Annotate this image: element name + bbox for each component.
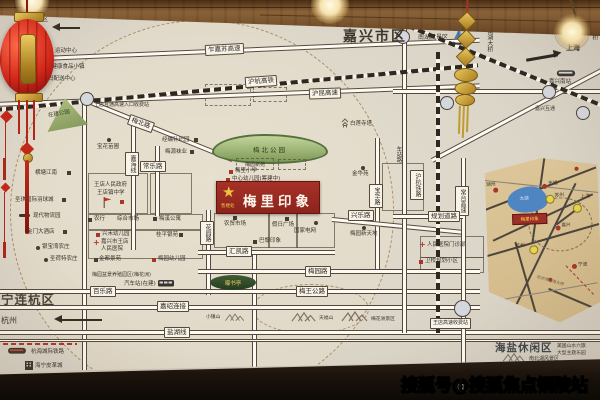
wangdian-gov-label: 王店人民政府 bbox=[94, 182, 127, 188]
side-knot bbox=[0, 110, 13, 123]
jiaxing-south-station-label: 嘉兴南站 bbox=[549, 79, 571, 85]
wangdian-school-label: 王店镇中学 bbox=[97, 190, 125, 196]
meiyuan-xinyuan-label: 梅园新苑 bbox=[245, 161, 265, 168]
xiaozhen-mountain-label: 小镇山 bbox=[206, 315, 220, 321]
bank-icon bbox=[88, 218, 92, 222]
meiwang-baile-road-line bbox=[0, 289, 480, 294]
pushuting-shape: 曝书亭 bbox=[210, 275, 256, 290]
road-label-guihua: 规划道路 bbox=[428, 211, 460, 222]
city-dot-ningbo bbox=[572, 264, 577, 269]
project-box: ★ 售楼处 梅里印象 bbox=[216, 181, 320, 214]
road-label-xingle: 兴乐路 bbox=[348, 210, 374, 221]
road-label-zhajiasu: 乍嘉苏高速 bbox=[205, 43, 244, 56]
poi-dot-icon bbox=[362, 226, 366, 230]
road-label-huikai: 汇凯路 bbox=[226, 246, 252, 257]
ninglianhang-title: 宁连杭区 bbox=[1, 293, 55, 307]
pushuting-label: 曝书亭 bbox=[225, 279, 242, 287]
jiaxing-interchange-label: 嘉兴互通 bbox=[535, 107, 555, 113]
hotel-icon bbox=[67, 171, 71, 175]
road-label-hukun: 沪昆高速 bbox=[309, 87, 341, 99]
six-flags-label-line1: 美国山水六旗 bbox=[557, 344, 586, 350]
city-label-huzhou: 湖州 bbox=[486, 181, 496, 188]
abc-bank-label: 农行 bbox=[94, 216, 105, 222]
red-cross-icon: + bbox=[93, 238, 100, 247]
star-icon: ★ bbox=[222, 183, 235, 201]
guiping-label: 桂平银苑 bbox=[156, 232, 178, 238]
lantern-body bbox=[0, 19, 54, 95]
toll-entry-label: 王店互通高速入口收费站 bbox=[94, 103, 149, 109]
poi-square-icon bbox=[253, 240, 257, 244]
xinghe-kindergarten-label: 兴禾幼儿园 bbox=[102, 231, 130, 237]
poi-square-icon bbox=[285, 217, 289, 221]
hanghai-railway-line bbox=[3, 343, 77, 345]
school-icon bbox=[120, 200, 124, 204]
knitting-park-label: 经编针织园 bbox=[162, 137, 190, 143]
state-grid-label: 国家电网 bbox=[294, 228, 316, 234]
tianfu-mountain-label: 天福山 bbox=[319, 316, 333, 322]
project-inset-box: 梅里印象 bbox=[512, 213, 547, 225]
road-label-huayuan: 花园路 bbox=[200, 221, 214, 245]
holiday-plaza-label: 假日广场 bbox=[272, 222, 294, 228]
city-block bbox=[88, 214, 203, 230]
huikai-road-line bbox=[198, 250, 335, 255]
inset-bridge-label: 杭州湾跨海大桥 bbox=[536, 274, 565, 287]
meili-primary-label: 梅里小学 bbox=[235, 168, 257, 174]
mountain-icon bbox=[290, 310, 318, 323]
city-dot-huzhou bbox=[493, 188, 498, 193]
bus-station-label: 汽车站(在建) bbox=[124, 281, 156, 287]
meiyuan-xintiandi-label: 梅园新天地 bbox=[350, 231, 378, 237]
hospital-label-line2: 人民医院 bbox=[101, 246, 123, 252]
sales-office-label: 售楼处 bbox=[221, 203, 235, 209]
hotel-icon bbox=[63, 230, 67, 234]
farmers-market-label: 农贸市场 bbox=[224, 221, 246, 227]
city-label-ningbo: 宁波 bbox=[578, 260, 588, 267]
pagoda-icon bbox=[341, 118, 349, 128]
hanghai-rail-label: 杭海城际铁路 bbox=[31, 349, 64, 355]
road-label-changle: 常乐路 bbox=[140, 161, 166, 172]
road-label-huhang-hsr: 沪杭高铁 bbox=[245, 75, 278, 88]
red-cross-icon: + bbox=[419, 240, 426, 249]
building-icon bbox=[94, 258, 98, 262]
bailian-pagoda-label: 白莲寺塔 bbox=[350, 121, 372, 127]
yanhu-line bbox=[0, 330, 600, 335]
poi-square-icon bbox=[233, 216, 237, 220]
kindergarten-icon bbox=[152, 258, 156, 262]
baohua-nursery-label: 宝花苗圃 bbox=[97, 144, 119, 150]
mountain-icon bbox=[340, 309, 370, 323]
road-label-jiashao: 嘉绍连接 bbox=[157, 301, 189, 312]
mountain-icon bbox=[224, 312, 246, 322]
bus-icon bbox=[158, 280, 174, 288]
hangzhou-direction-label: 杭州 bbox=[1, 316, 17, 325]
meixi-apartments-label: 梅溪公寓 bbox=[159, 216, 181, 222]
building-icon bbox=[179, 233, 183, 237]
arrow-left-icon bbox=[58, 319, 102, 321]
project-inset-label: 梅里印象 bbox=[521, 216, 539, 223]
road-label-huhang-rail: 沪杭铁路 bbox=[410, 170, 424, 200]
city-label-jiaxing: 嘉兴 bbox=[561, 222, 570, 228]
interchange-circle bbox=[80, 92, 94, 106]
flag-icon bbox=[103, 197, 112, 208]
city-label-hangzhou: 杭州 bbox=[515, 242, 525, 249]
nanhu-scenic-label: 南湖风景区 bbox=[418, 35, 448, 42]
paris-impression-label: 巴黎印象 bbox=[259, 238, 281, 244]
city-dot-wuxi bbox=[542, 184, 547, 189]
poi-dot-icon bbox=[107, 138, 111, 142]
watermark: 搜狐号@搜狐焦点铜陵站 bbox=[401, 371, 588, 396]
train-icon bbox=[5, 347, 29, 355]
market-label: 综合市场 bbox=[117, 216, 139, 222]
poi-dot-icon bbox=[314, 221, 318, 225]
road-label-meiwang: 梅王公路 bbox=[296, 286, 328, 297]
project-name: 梅里印象 bbox=[243, 190, 313, 210]
road-label-baile: 百乐路 bbox=[90, 286, 116, 297]
road-label-meiyuan: 梅园路 bbox=[305, 266, 331, 277]
city-circle-hangzhou bbox=[529, 245, 538, 254]
lantern-gold-tassel bbox=[20, 34, 36, 84]
road-label-baohua: 宝华路 bbox=[369, 184, 383, 208]
six-flags-label-line2: 大型主题乐园 bbox=[557, 351, 586, 357]
school-icon bbox=[229, 170, 233, 174]
jiahai-line-road bbox=[131, 118, 136, 250]
huhang-railway-line bbox=[436, 52, 440, 333]
building-icon bbox=[62, 198, 66, 202]
photo-of-location-map-board: 乍嘉苏高速 沪杭高铁 沪昆高速 王店互通高速入口收费站 梅北路 嘉海线 常乐路 … bbox=[0, 0, 600, 400]
city-area-title: 嘉兴市区 bbox=[343, 29, 407, 45]
meiyuan-socks-label: 梅源袜业 bbox=[165, 149, 187, 155]
meiyuan-kindergarten-label: 梅园幼儿园 bbox=[158, 256, 186, 262]
poi-dot-icon bbox=[361, 166, 365, 170]
building-icon bbox=[153, 217, 157, 221]
road-label-jiahai: 嘉海线 bbox=[125, 152, 139, 176]
penjing-garden-label: 梅园盆景养殖园区(梅花洲) bbox=[92, 273, 151, 279]
gold-ornament bbox=[448, 10, 483, 141]
changle-road-line bbox=[155, 146, 160, 216]
kindergarten-icon bbox=[96, 233, 100, 237]
light-bulb-glow bbox=[554, 14, 590, 50]
leather-city-label: 海宁皮革城 bbox=[35, 363, 63, 369]
clinic-label: 人民医院门诊部 bbox=[427, 242, 466, 248]
city-dot-minor bbox=[574, 167, 578, 171]
jindu-label: 金都景苑 bbox=[99, 256, 121, 262]
road-label-yanhu: 盐湖线 bbox=[164, 327, 190, 338]
inset-bridge-dashed-line bbox=[566, 265, 595, 294]
city-label-shanghai: 上海 bbox=[580, 192, 590, 199]
city-label-wuxi: 无锡 bbox=[548, 179, 558, 186]
meihuazhou-label: 梅花洲景区 bbox=[371, 317, 395, 323]
train-icon bbox=[556, 69, 576, 78]
toll-interchange-circle bbox=[454, 300, 471, 317]
meibei-park-label: 梅北公园 bbox=[253, 144, 287, 154]
hospital-label-line1: 嘉兴市王店 bbox=[101, 239, 129, 245]
interchange-circle bbox=[576, 106, 590, 120]
city-label-suzhou: 苏州 bbox=[554, 191, 564, 198]
school-icon bbox=[419, 260, 423, 264]
building-icon bbox=[25, 361, 33, 370]
road-label-chezhan: 车站路 bbox=[395, 146, 401, 163]
weixiao-label: 卫校规划小区 bbox=[425, 258, 458, 264]
taihu-lake-label: 太湖 bbox=[519, 195, 528, 201]
red-lantern bbox=[0, 0, 60, 260]
factory-icon bbox=[194, 138, 198, 142]
interchange-circle bbox=[542, 85, 556, 99]
jiashao-link-line bbox=[0, 305, 480, 310]
factory-icon bbox=[190, 150, 194, 154]
jinhua-yuan-label: 金华苑 bbox=[352, 171, 369, 177]
empty-planned-box bbox=[278, 159, 306, 170]
toll-gate-label: 王店高速收费站 bbox=[430, 318, 471, 329]
